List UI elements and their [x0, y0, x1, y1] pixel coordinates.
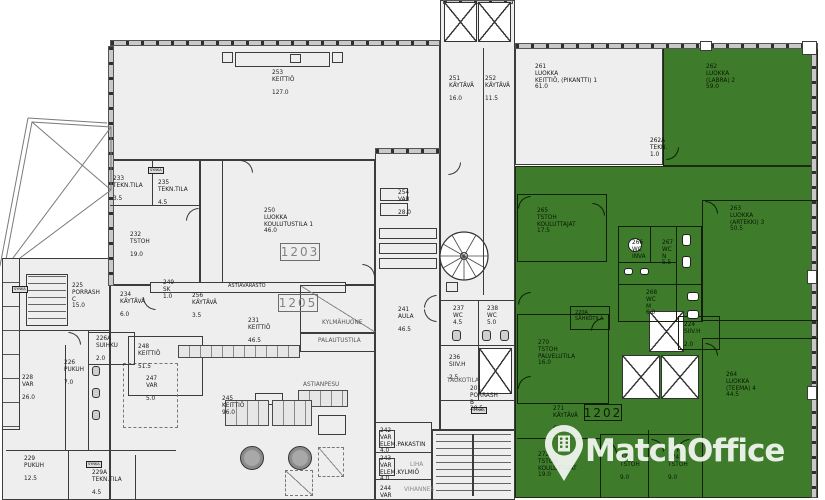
room-label-229: 229 PUKUH 12.5 [24, 456, 44, 483]
room-label-224: 224 SIIV.H 2.0 [684, 322, 701, 349]
room-label-228: 228 VAR 26.0 [22, 375, 35, 402]
elevator-shaft [478, 2, 511, 42]
sink-icon [640, 268, 649, 275]
wall-notch [700, 41, 712, 51]
wall-hatch-hall-top [375, 148, 440, 154]
stair-b-stringer [472, 434, 474, 496]
toilet-icon [500, 330, 509, 341]
area-label-vihannes: VIHANNES [404, 487, 434, 494]
area-label-palautustila: PALAUTUSTILA [318, 338, 361, 345]
shelf [379, 258, 437, 269]
room-label-225: 225 PORRASH C 15.0 [72, 283, 100, 310]
room-label-201: 201 PORRASH B 20.5 [470, 386, 498, 413]
room-label-252: 252 KÄYTÄVÄ 11.5 [485, 76, 510, 103]
area-label-kylmahuone: KYLMÄHUONE [322, 320, 363, 327]
room-label-235: 235 TEKN.TILA 4.5 [158, 180, 188, 207]
room-label-264: 264 LUOKKA (TEEMA) 4 44.5 [726, 372, 756, 399]
shelf [379, 243, 437, 254]
gwall [650, 226, 651, 262]
range-245 [272, 400, 312, 426]
toilet-icon [682, 256, 691, 268]
hood-253 [235, 52, 330, 67]
column [332, 52, 343, 63]
toilet-icon [92, 388, 100, 398]
column [222, 52, 233, 63]
reserved-equip [285, 470, 313, 496]
wall-notch [802, 41, 817, 55]
toilet-icon [92, 366, 100, 376]
room-label-242: 242 VAR ELEM.PAKASTIN 4.0 [380, 428, 425, 455]
room-label-265: 265 TSTOH KOULUTTAJAT 17.5 [537, 208, 576, 235]
worktop-245 [318, 415, 346, 435]
toilet-icon [92, 410, 100, 420]
spiral-stair [436, 228, 494, 286]
room-label-270: 270 TSTOH PALVELUTILA 16.0 [538, 340, 575, 367]
room-label-237: 237 WC 4.5 [453, 306, 464, 326]
floor-plan: SYNKA SYNKA SYNKA SYNKA 253 KEITTIÖ 127.… [0, 0, 825, 500]
watermark-brand-text: MatchOffice [585, 433, 784, 469]
room-label-238: 238 WC 5.0 [487, 306, 498, 326]
column [290, 54, 301, 63]
unit-box-1203: 1203 [280, 243, 320, 261]
elevator-shaft [622, 355, 660, 399]
gwall [702, 200, 703, 322]
wall [483, 48, 484, 295]
wall [222, 160, 223, 285]
reserved-equip [318, 447, 344, 477]
gwall [676, 226, 677, 322]
room-label-249: 249 SK 1.0 [163, 280, 174, 300]
kettle [240, 446, 264, 470]
location-pin-icon [543, 424, 585, 482]
wall-opening [807, 270, 817, 284]
toilet-icon [682, 234, 691, 246]
gwall [618, 284, 702, 285]
toilet-icon [687, 292, 699, 301]
area-label-liha: LIHA [410, 462, 423, 469]
shelf [379, 228, 437, 239]
room-label-234: 234 KÄYTÄVÄ 6.0 [120, 292, 145, 319]
room-label-248: 248 KEITTIÖ 51.5 [138, 344, 160, 371]
room-label-243: 243 VAR ELEM.KYLMIÖ 4.0 [380, 456, 419, 483]
wall-hatch-top-right [515, 43, 818, 49]
stair-c-treads [28, 276, 66, 324]
gwall [702, 200, 818, 201]
room-label-226a: 226A SUIHKU 2.0 [96, 336, 118, 363]
synka-chip: SYNKA [148, 167, 164, 174]
wall [440, 345, 515, 346]
green-room-262 [663, 48, 818, 166]
toilet-icon [687, 310, 699, 319]
spiral-stair-landing [446, 282, 458, 292]
room-label-231: 231 KEITTIÖ 46.5 [248, 318, 270, 345]
wall [478, 300, 479, 400]
skylight-void [0, 0, 130, 290]
synka-chip: SYNKA [12, 286, 28, 293]
room-label-232: 232 TSTOH 19.0 [130, 232, 150, 259]
room-label-262a: 262A TEKN. 1.0 [650, 138, 667, 158]
wall-opening [807, 386, 817, 400]
unit-box-1202: 1202 [584, 404, 622, 421]
room-label-262: 262 LUOKKA (LABRA) 2 59.0 [706, 64, 735, 91]
room-label-226: 226 PUKUH 7.0 [64, 360, 84, 387]
room-label-251: 251 KÄYTÄVÄ 16.0 [449, 76, 474, 103]
room-label-250: 250 LUOKKA KOULUTUSTILA 1 46.0 [264, 208, 313, 235]
room-label-245: 245 KEITTIÖ 96.0 [222, 396, 244, 416]
wall [135, 455, 136, 500]
west-cell-strip [2, 258, 20, 430]
elevator-shaft [661, 355, 699, 399]
toilet-icon [452, 330, 461, 341]
room-label-256: 256 KÄYTÄVÄ 3.5 [192, 293, 217, 320]
room-label-263: 263 LUOKKA (ARTEKKI) 3 50.5 [730, 206, 764, 233]
room-label-229a: 229A TEKN.TILA 4.5 [92, 470, 122, 497]
toilet-icon [482, 330, 491, 341]
wall-hatch-top-left [110, 40, 440, 46]
wall [6, 450, 176, 451]
synka-chip: SYNKA [86, 461, 102, 468]
area-label-taukotila: TAUKOTILA [447, 378, 479, 385]
elevator-shaft [444, 2, 477, 42]
room-label-241: 241 AULA 46.5 [398, 307, 414, 334]
area-label-astiavarasto: ASTIAVARASTO [228, 284, 266, 290]
sink-icon [624, 268, 633, 275]
kettle [288, 446, 312, 470]
room-261-class [515, 45, 663, 165]
room-label-261: 261 LUOKKA KEITTIÖ, (PIKANTTI) 1 61.0 [535, 64, 597, 91]
room-label-244: 244 VAR [380, 486, 392, 500]
unit-box-1205: 1205 [278, 294, 318, 312]
area-label-astianpesu: ASTIANPESU [303, 382, 339, 389]
room-label-233: 233 TEKN.TILA 3.5 [113, 176, 143, 203]
room-label-220a: 220A SÄHKÖTILA [575, 311, 603, 323]
room-label-254: 254 VAR 28.0 [398, 190, 411, 217]
room-label-247: 247 VAR 5.0 [146, 376, 158, 403]
wall [68, 450, 69, 500]
matchoffice-watermark: MatchOffice [543, 424, 784, 482]
room-label-268: 268 WC M 6.0 [646, 290, 657, 317]
counter-231 [178, 345, 300, 358]
wall [6, 330, 110, 331]
room-label-266: 266 WC INVA [632, 240, 646, 260]
room-label-267: 267 WC N 5.5 [662, 240, 673, 267]
room-label-253: 253 KEITTIÖ 127.0 [272, 70, 294, 97]
